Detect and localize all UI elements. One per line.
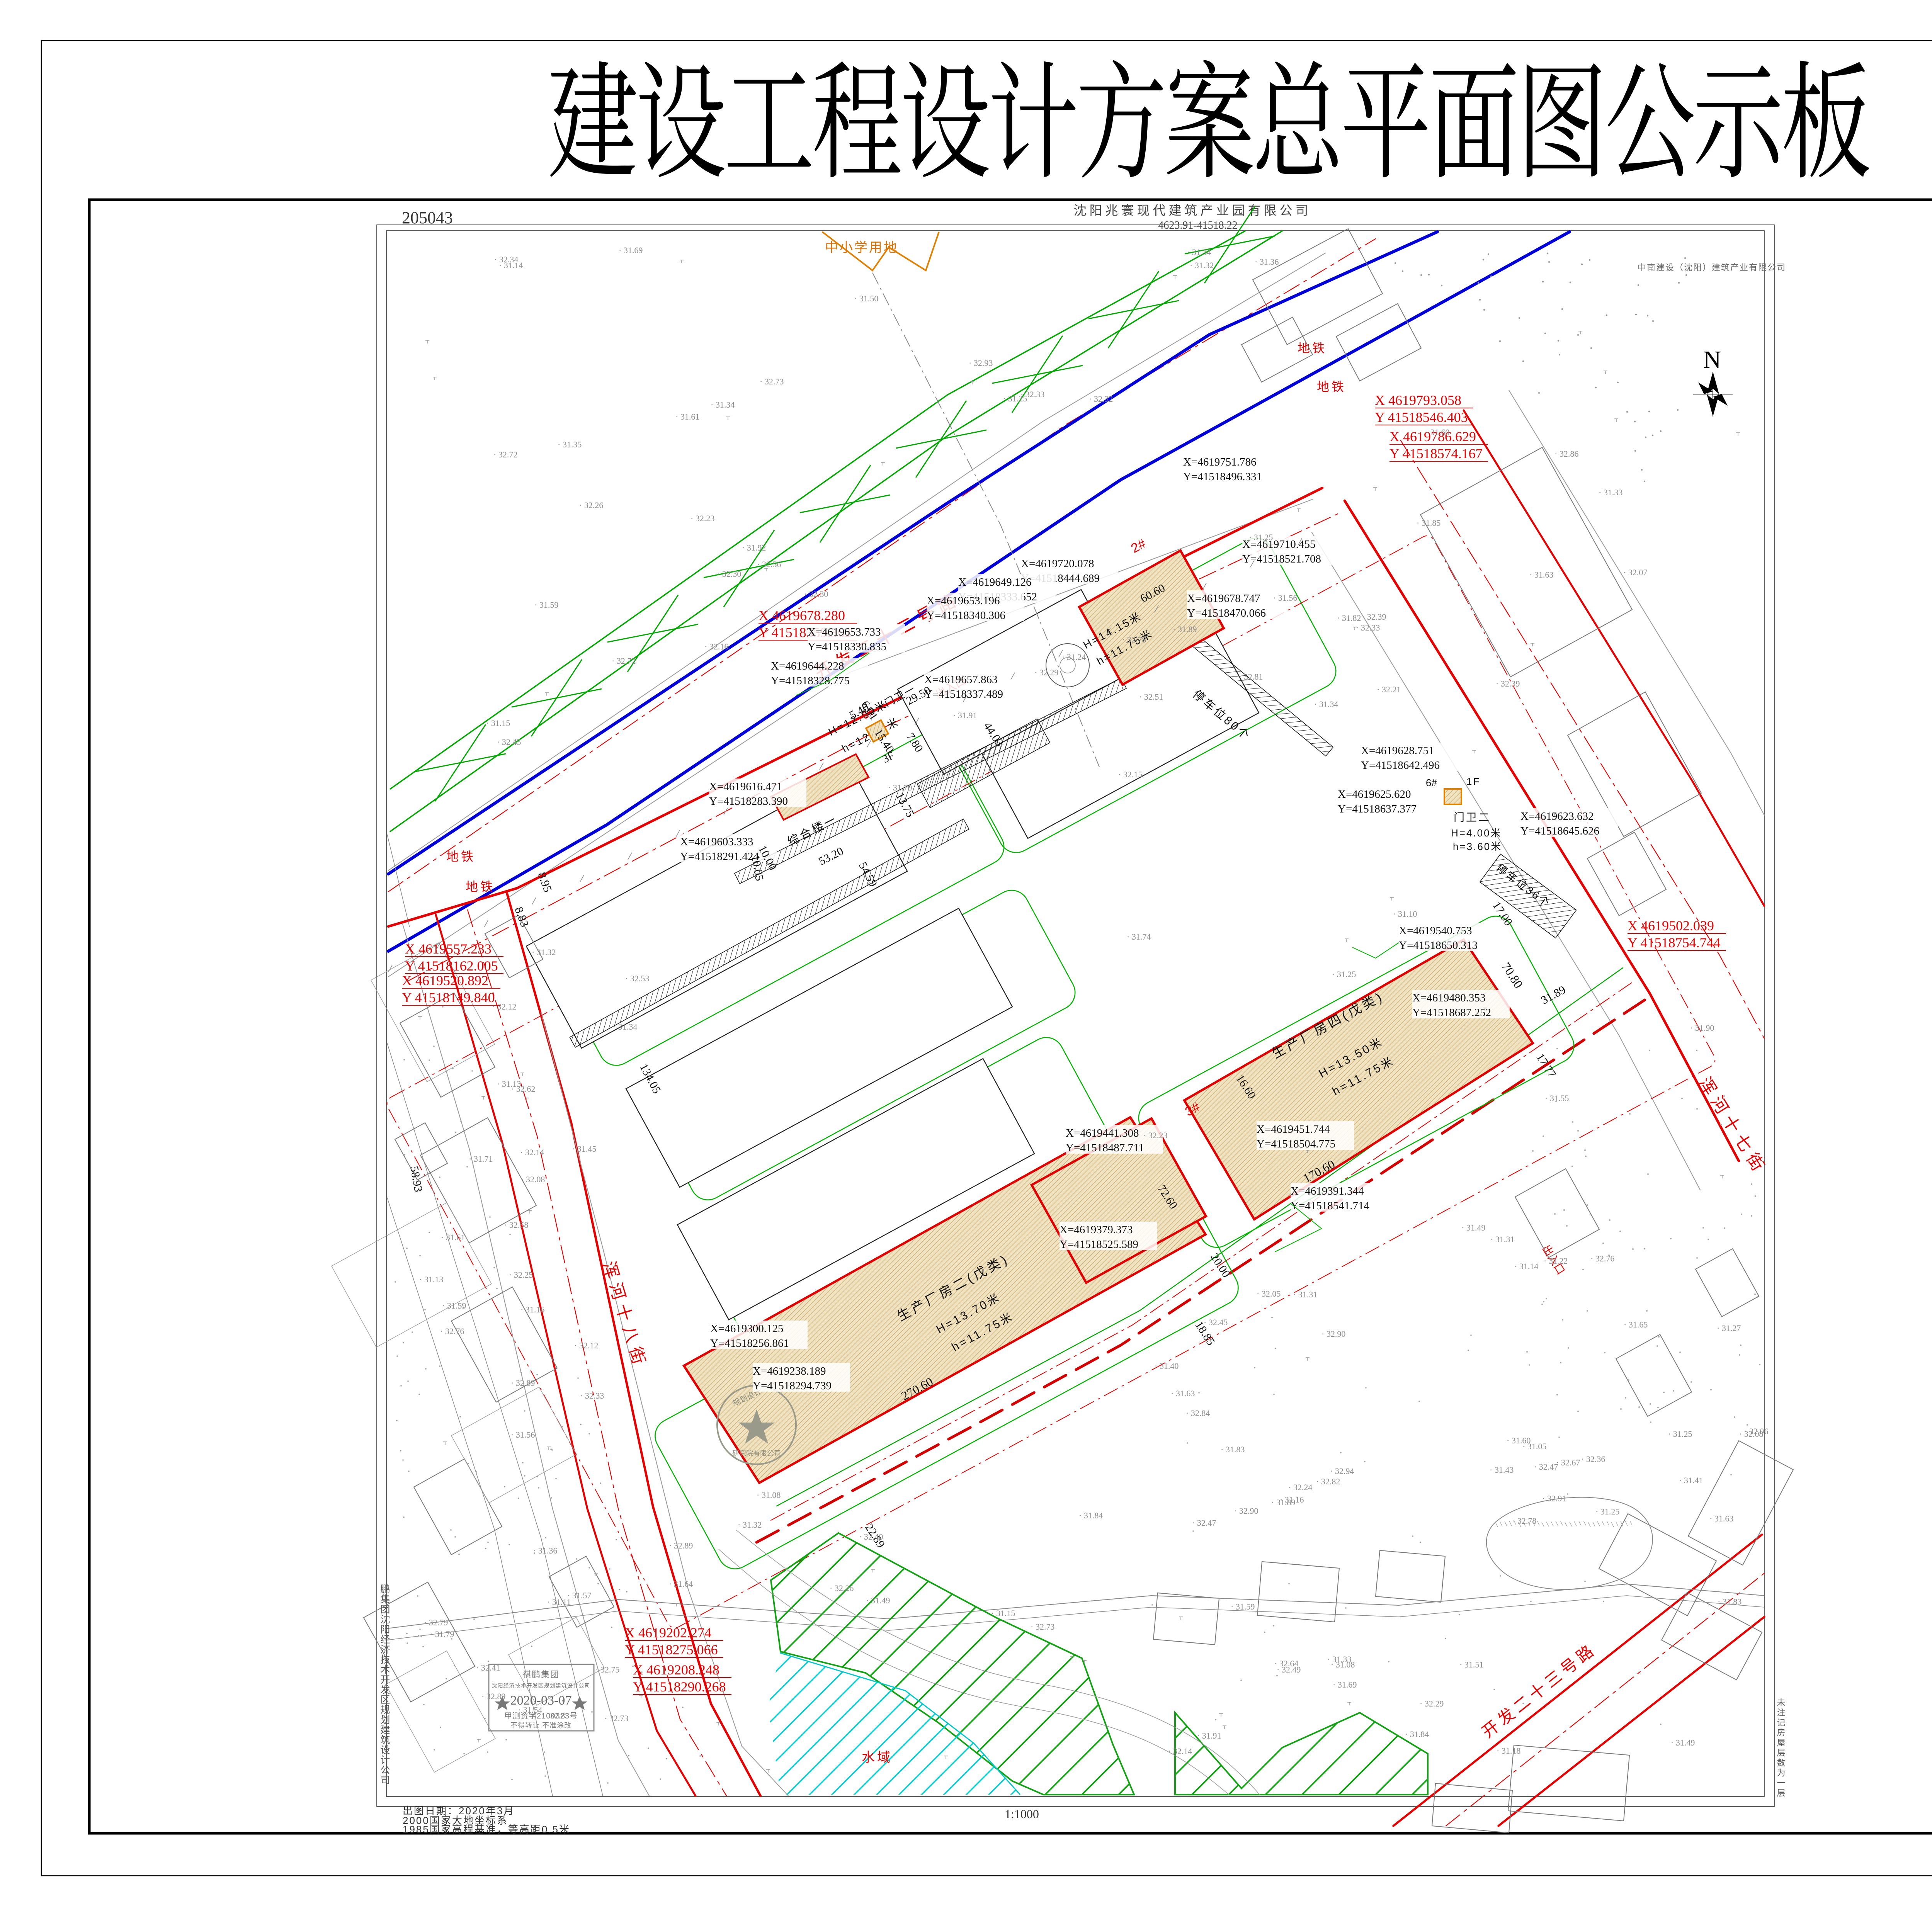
svg-text:· 32.84: · 32.84 xyxy=(1186,1408,1210,1418)
svg-text:· 32.73: · 32.73 xyxy=(760,377,784,386)
svg-text:· 31.25: · 31.25 xyxy=(1332,969,1356,979)
svg-text:· 31.64: · 31.64 xyxy=(669,1579,693,1589)
svg-text:· 31.18: · 31.18 xyxy=(1497,1746,1520,1756)
svg-text:X=4619751.786: X=4619751.786 xyxy=(1183,456,1257,468)
svg-text:· 31.59: · 31.59 xyxy=(1231,1602,1255,1611)
svg-text:· 32.64: · 32.64 xyxy=(1274,1659,1298,1668)
svg-text:· 32.23: · 32.23 xyxy=(690,513,714,523)
svg-text:· 31.70: · 31.70 xyxy=(888,783,912,792)
svg-text:X=4619379.373: X=4619379.373 xyxy=(1060,1224,1133,1236)
svg-text:· 31.83: · 31.83 xyxy=(1221,1445,1245,1454)
svg-text:Y 41518546.403: Y 41518546.403 xyxy=(1375,410,1468,425)
svg-text:Y=41518294.739: Y=41518294.739 xyxy=(753,1380,832,1392)
svg-text:· 31.79: · 31.79 xyxy=(430,1629,454,1639)
svg-text:· 32.39: · 32.39 xyxy=(1362,612,1386,622)
svg-text:1F: 1F xyxy=(1466,776,1480,787)
svg-text:· 32.72: · 32.72 xyxy=(612,656,636,666)
svg-text:X=4619720.078: X=4619720.078 xyxy=(1021,558,1094,570)
svg-text:· 32.41: · 32.41 xyxy=(476,1663,500,1673)
svg-text:· 31.89: · 31.89 xyxy=(1271,1497,1295,1507)
svg-text:X=4619623.632: X=4619623.632 xyxy=(1520,810,1594,823)
svg-text:· 32.07: · 32.07 xyxy=(1623,568,1647,577)
svg-text:X 4619202.274: X 4619202.274 xyxy=(625,1625,711,1640)
svg-text:· 32.56: · 32.56 xyxy=(757,559,781,569)
svg-text:Y=41518687.252: Y=41518687.252 xyxy=(1412,1006,1491,1019)
svg-text:不得转让 不准涂改: 不得转让 不准涂改 xyxy=(510,1722,571,1729)
svg-text:· 32.72: · 32.72 xyxy=(493,450,517,459)
svg-text:· 31.89: · 31.89 xyxy=(1173,624,1197,634)
svg-text:· 31.60: · 31.60 xyxy=(1425,427,1449,437)
svg-text:· 32.14: · 32.14 xyxy=(520,1147,544,1157)
svg-text:· 31.27: · 31.27 xyxy=(1717,1323,1741,1333)
svg-text:· 31.61: · 31.61 xyxy=(675,412,699,422)
svg-text:中小学用地: 中小学用地 xyxy=(825,240,898,255)
svg-text:· 32.90: · 32.90 xyxy=(1321,1329,1345,1339)
svg-text:· 32.82: · 32.82 xyxy=(1316,1477,1340,1486)
svg-text:X=4619391.344: X=4619391.344 xyxy=(1291,1185,1364,1197)
svg-text:Y=41518291.424: Y=41518291.424 xyxy=(680,850,759,863)
svg-text:X=4619644.228: X=4619644.228 xyxy=(771,660,844,672)
svg-text:Y=41518504.775: Y=41518504.775 xyxy=(1257,1138,1335,1150)
svg-text:2#: 2# xyxy=(1129,536,1148,556)
svg-text:· 32.47: · 32.47 xyxy=(1534,1462,1558,1472)
svg-text:· 32.89: · 32.89 xyxy=(481,1691,505,1701)
svg-text:· 31.25: · 31.25 xyxy=(1668,1429,1692,1439)
svg-text:X=4619603.333: X=4619603.333 xyxy=(680,836,753,848)
svg-text:Y 41518162.005: Y 41518162.005 xyxy=(405,958,498,974)
svg-text:未注记房屋层数为一层: 未注记房屋层数为一层 xyxy=(1776,1698,1786,1798)
svg-text:· 31.15: · 31.15 xyxy=(991,1608,1015,1618)
svg-text:· 31.45: · 31.45 xyxy=(572,1144,596,1154)
svg-text:· 31.34: · 31.34 xyxy=(613,1022,637,1032)
svg-text:· 32.33: · 32.33 xyxy=(1020,389,1044,399)
svg-text:祺鹏集团: 祺鹏集团 xyxy=(522,1670,560,1679)
svg-text:· 32.39: · 32.39 xyxy=(1496,679,1520,688)
svg-text:· 32.67: · 32.67 xyxy=(1556,1458,1580,1467)
svg-text:X 4619502.039: X 4619502.039 xyxy=(1628,918,1714,933)
svg-text:· 31.35: · 31.35 xyxy=(558,440,582,449)
svg-text:X=4619441.308: X=4619441.308 xyxy=(1066,1127,1139,1139)
svg-text:· 31.15: · 31.15 xyxy=(486,718,510,728)
svg-text:· 31.55: · 31.55 xyxy=(1545,1093,1569,1103)
svg-text:· 32.90: · 32.90 xyxy=(1234,1506,1258,1516)
svg-text:· 31.84: · 31.84 xyxy=(1079,1511,1103,1520)
svg-text:· 31.34: · 31.34 xyxy=(1314,699,1338,709)
svg-text:· 31.59: · 31.59 xyxy=(534,600,558,610)
svg-text:水域: 水域 xyxy=(862,1750,893,1765)
svg-text:Y 41518290.268: Y 41518290.268 xyxy=(633,1679,726,1695)
svg-text:· 32.47: · 32.47 xyxy=(1192,1518,1216,1528)
svg-text:· 32.12: · 32.12 xyxy=(492,1002,516,1011)
svg-text:X=4619625.620: X=4619625.620 xyxy=(1338,788,1411,801)
svg-text:· 32.78: · 32.78 xyxy=(1122,635,1146,644)
svg-text:X=4619628.751: X=4619628.751 xyxy=(1361,744,1434,757)
svg-text:X 4619557.233: X 4619557.233 xyxy=(405,941,492,957)
svg-text:· 32.21: · 32.21 xyxy=(1377,685,1401,694)
svg-text:· 32.26: · 32.26 xyxy=(830,1583,854,1593)
svg-text:Y=41518525.589: Y=41518525.589 xyxy=(1060,1238,1138,1251)
svg-text:浑河十八街: 浑河十八街 xyxy=(599,1259,650,1372)
svg-text:· 31.63: · 31.63 xyxy=(1529,570,1553,580)
svg-text:· 31.92: · 31.92 xyxy=(742,543,766,552)
svg-text:· 32.24: · 32.24 xyxy=(1288,1482,1312,1492)
svg-text:205043: 205043 xyxy=(402,208,453,227)
svg-text:8.95: 8.95 xyxy=(535,870,554,894)
svg-text:X 4619208.248: X 4619208.248 xyxy=(633,1662,719,1678)
svg-text:· 32.51: · 32.51 xyxy=(1139,692,1163,702)
svg-text:X=4619649.126: X=4619649.126 xyxy=(958,576,1032,588)
svg-text:· 32.33: · 32.33 xyxy=(580,1391,604,1401)
svg-text:Y=41518645.626: Y=41518645.626 xyxy=(1520,825,1599,837)
svg-text:Y=41518330.835: Y=41518330.835 xyxy=(808,641,886,653)
svg-text:· 31.24: · 31.24 xyxy=(1062,652,1086,662)
svg-text:· 31.43: · 31.43 xyxy=(1490,1465,1514,1475)
svg-text:· 32.73: · 32.73 xyxy=(1031,1622,1054,1632)
svg-text:· 32.12: · 32.12 xyxy=(574,1341,598,1350)
svg-text:· 31.54: · 31.54 xyxy=(518,1705,542,1715)
svg-text:· 32.29: · 32.29 xyxy=(1034,668,1058,677)
svg-text:· 32.76: · 32.76 xyxy=(440,1326,464,1336)
svg-text:· 31.40: · 31.40 xyxy=(1155,1361,1179,1371)
svg-text:· 31.32: · 31.32 xyxy=(1190,260,1214,270)
svg-text:· 31.60: · 31.60 xyxy=(1507,1436,1531,1445)
svg-text:· 32.45: · 32.45 xyxy=(1204,1317,1228,1327)
svg-text:· 32.29: · 32.29 xyxy=(1420,1699,1444,1708)
svg-text:X=4619238.189: X=4619238.189 xyxy=(753,1365,826,1377)
svg-text:Y=41518637.377: Y=41518637.377 xyxy=(1338,803,1417,815)
svg-text:· 31.22: · 31.22 xyxy=(1544,1256,1568,1266)
svg-text:· 31.25: · 31.25 xyxy=(1249,532,1273,542)
svg-text:· 32.36: · 32.36 xyxy=(1581,1454,1605,1464)
svg-text:· 31.84: · 31.84 xyxy=(1405,1729,1429,1739)
svg-text:地铁: 地铁 xyxy=(446,850,476,863)
svg-text:· 31.14: · 31.14 xyxy=(499,260,523,270)
svg-text:Y=41518340.306: Y=41518340.306 xyxy=(927,609,1005,622)
svg-text:地铁: 地铁 xyxy=(1317,380,1346,394)
svg-text:· 32.30: · 32.30 xyxy=(804,589,828,599)
svg-text:沈阳经济技术开发区规划建筑设计公司: 沈阳经济技术开发区规划建筑设计公司 xyxy=(492,1683,590,1689)
svg-text:Y=41518470.066: Y=41518470.066 xyxy=(1187,607,1266,619)
svg-text:· 32.16: · 32.16 xyxy=(704,642,728,651)
svg-text:· 32.78: · 32.78 xyxy=(1512,1516,1536,1526)
svg-text:· 31.82: · 31.82 xyxy=(1337,613,1361,623)
svg-text:Y=41518521.708: Y=41518521.708 xyxy=(1242,553,1321,565)
svg-text:· 31.56: · 31.56 xyxy=(511,1430,535,1440)
svg-text:X=4619653.196: X=4619653.196 xyxy=(927,595,1000,607)
svg-text:· 31.69: · 31.69 xyxy=(619,245,643,255)
svg-text:X=4619480.353: X=4619480.353 xyxy=(1412,992,1486,1004)
svg-text:· 31.10: · 31.10 xyxy=(1393,909,1417,919)
svg-text:· 32.25: · 32.25 xyxy=(509,1270,533,1280)
svg-text:开发二十三号路: 开发二十三号路 xyxy=(1478,1640,1600,1741)
svg-text:· 31.31: · 31.31 xyxy=(1293,1290,1317,1299)
svg-text:H=4.00米: H=4.00米 xyxy=(1451,827,1502,839)
svg-text:· 32.75: · 32.75 xyxy=(595,1665,619,1674)
svg-text:X 4619520.892: X 4619520.892 xyxy=(402,973,488,988)
svg-text:· 31.36: · 31.36 xyxy=(533,1546,557,1555)
svg-text:X=4619616.471: X=4619616.471 xyxy=(709,780,782,793)
svg-text:· 32.86: · 32.86 xyxy=(1554,449,1578,459)
svg-text:· 31.49: · 31.49 xyxy=(1671,1738,1695,1747)
svg-text:· 31.69: · 31.69 xyxy=(1333,1680,1357,1690)
svg-text:· 32.81: · 32.81 xyxy=(1239,672,1263,682)
svg-text:· 32.23: · 32.23 xyxy=(1143,1130,1167,1140)
svg-text:· 32.76: · 32.76 xyxy=(1590,1254,1614,1263)
svg-text:· 31.63: · 31.63 xyxy=(1171,1389,1195,1398)
svg-text:Y 41518149.840: Y 41518149.840 xyxy=(402,990,495,1005)
svg-text:Y=41518337.489: Y=41518337.489 xyxy=(924,688,1003,700)
svg-text:· 31.50: · 31.50 xyxy=(854,294,878,303)
svg-text:· 31.08: · 31.08 xyxy=(757,1490,781,1500)
svg-text:X 4619793.058: X 4619793.058 xyxy=(1375,393,1461,408)
svg-text:· 32.73: · 32.73 xyxy=(604,1713,628,1723)
svg-text:Y=41518487.711: Y=41518487.711 xyxy=(1066,1142,1144,1154)
svg-text:· 31.41: · 31.41 xyxy=(1679,1475,1703,1485)
svg-text:· 31.90: · 31.90 xyxy=(1690,1023,1714,1033)
svg-text:· 31.49: · 31.49 xyxy=(866,1596,890,1605)
svg-text:1:1000: 1:1000 xyxy=(1005,1807,1039,1821)
svg-text:· 31.33: · 31.33 xyxy=(1599,488,1622,497)
svg-text:· 31.34: · 31.34 xyxy=(1187,247,1211,257)
svg-text:· 31.61: · 31.61 xyxy=(441,1232,465,1242)
svg-text:Y 41518754.744: Y 41518754.744 xyxy=(1628,935,1721,950)
svg-text:· 31.13: · 31.13 xyxy=(497,1079,521,1089)
svg-text:· 32.91: · 32.91 xyxy=(1542,1494,1566,1503)
svg-text:· 31.34: · 31.34 xyxy=(711,400,735,410)
svg-text:· 32.08: · 32.08 xyxy=(1739,1429,1763,1439)
svg-text:X=4619451.744: X=4619451.744 xyxy=(1257,1123,1330,1135)
svg-text:X=4619653.733: X=4619653.733 xyxy=(808,626,881,638)
svg-text:X=4619540.753: X=4619540.753 xyxy=(1399,925,1472,937)
svg-text:· 31.36: · 31.36 xyxy=(1255,257,1279,267)
svg-text:X 4619678.280: X 4619678.280 xyxy=(759,608,845,623)
svg-text:· 32.58: · 32.58 xyxy=(504,1220,528,1230)
svg-text:· 32.30: · 32.30 xyxy=(717,569,741,579)
svg-text:· 32.93: · 32.93 xyxy=(969,358,993,368)
svg-text:· 32.45: · 32.45 xyxy=(497,737,521,747)
svg-text:· 31.25: · 31.25 xyxy=(1595,1507,1619,1516)
svg-text:· 32.26: · 32.26 xyxy=(579,500,603,510)
svg-text:h=3.60米: h=3.60米 xyxy=(1453,841,1502,852)
svg-text:鹏集团沈阳经济技术开发区规划建筑设计公司: 鹏集团沈阳经济技术开发区规划建筑设计公司 xyxy=(379,1584,390,1785)
svg-text:· 31.74: · 31.74 xyxy=(1127,932,1151,942)
svg-text:· 32.15: · 32.15 xyxy=(1118,770,1142,779)
svg-text:· 31.63: · 31.63 xyxy=(1709,1514,1733,1523)
svg-text:· 31.08: · 31.08 xyxy=(1331,1660,1355,1669)
svg-text:· 32.89: · 32.89 xyxy=(511,1378,535,1388)
svg-text:· 32.14: · 32.14 xyxy=(1168,1746,1192,1756)
svg-text:· 31.32: · 31.32 xyxy=(738,1520,762,1530)
svg-text:Y=41518328.775: Y=41518328.775 xyxy=(771,675,850,687)
svg-text:· 31.65: · 31.65 xyxy=(1624,1320,1648,1329)
svg-text:· 32.05: · 32.05 xyxy=(1257,1289,1281,1299)
svg-text:20.00: 20.00 xyxy=(1208,1251,1233,1280)
svg-text:· 32.94: · 32.94 xyxy=(1330,1466,1354,1476)
svg-text:Y 41518574.167: Y 41518574.167 xyxy=(1389,446,1483,461)
svg-text:X=4619678.747: X=4619678.747 xyxy=(1187,592,1260,605)
svg-text:N: N xyxy=(1703,346,1721,373)
svg-text:· 31.32: · 31.32 xyxy=(532,947,556,957)
svg-text:· 31.14: · 31.14 xyxy=(1514,1261,1538,1271)
svg-text:中南建设（沈阳）建筑产业有限公司: 中南建设（沈阳）建筑产业有限公司 xyxy=(1638,263,1786,272)
svg-text:研究院有限公司: 研究院有限公司 xyxy=(732,1450,781,1457)
svg-text:地铁: 地铁 xyxy=(466,880,495,894)
svg-text:· 32.40: · 32.40 xyxy=(859,1532,883,1542)
svg-text:Y=41518283.390: Y=41518283.390 xyxy=(709,795,788,807)
svg-text:沈阳兆寰现代建筑产业园有限公司: 沈阳兆寰现代建筑产业园有限公司 xyxy=(1074,203,1311,218)
svg-text:· 31.59: · 31.59 xyxy=(442,1301,466,1310)
svg-text:· 31.85: · 31.85 xyxy=(1417,518,1440,528)
svg-text:浑河十七街: 浑河十七街 xyxy=(1695,1074,1770,1179)
svg-text:70.80: 70.80 xyxy=(1499,960,1526,991)
svg-text:X=4619300.125: X=4619300.125 xyxy=(710,1322,784,1335)
svg-text:· 31.83: · 31.83 xyxy=(1718,1597,1742,1606)
svg-text:58.93: 58.93 xyxy=(408,1165,425,1193)
svg-text:· 31.71: · 31.71 xyxy=(469,1154,493,1164)
svg-text:Y 41518275.066: Y 41518275.066 xyxy=(625,1642,718,1657)
svg-text:· 32.89: · 32.89 xyxy=(669,1541,693,1550)
svg-text:· 31.31: · 31.31 xyxy=(1490,1234,1514,1244)
svg-text:Y=41518642.496: Y=41518642.496 xyxy=(1361,759,1440,772)
svg-text:· 31.91: · 31.91 xyxy=(1197,1731,1221,1741)
svg-text:· 31.57: · 31.57 xyxy=(567,1591,591,1600)
svg-text:· 31.49: · 31.49 xyxy=(1461,1223,1485,1232)
svg-text:· 31.13: · 31.13 xyxy=(419,1275,443,1284)
svg-text:Y=41518541.714: Y=41518541.714 xyxy=(1291,1200,1370,1212)
svg-text:X=4619657.863: X=4619657.863 xyxy=(924,673,998,686)
svg-text:· 32.83: · 32.83 xyxy=(545,1711,569,1720)
svg-text:· 32.33: · 32.33 xyxy=(1356,623,1380,632)
svg-text:· 32.79: · 32.79 xyxy=(424,1618,448,1627)
svg-text:· 32.32: · 32.32 xyxy=(1089,394,1113,404)
svg-text:地铁: 地铁 xyxy=(1298,341,1327,355)
svg-text:· 31.56: · 31.56 xyxy=(1273,593,1297,603)
svg-text:· 32.08: · 32.08 xyxy=(521,1175,545,1184)
svg-text:1985国家高程基准，等高距0.5米: 1985国家高程基准，等高距0.5米 xyxy=(403,1824,570,1835)
svg-text:Y=41518496.331: Y=41518496.331 xyxy=(1183,471,1262,483)
svg-text:Y=41518256.861: Y=41518256.861 xyxy=(710,1337,789,1350)
svg-text:· 32.53: · 32.53 xyxy=(625,974,649,983)
svg-text:· 31.51: · 31.51 xyxy=(1459,1660,1483,1669)
svg-text:· 31.16: · 31.16 xyxy=(520,1305,544,1314)
svg-text:门卫二: 门卫二 xyxy=(1454,811,1491,823)
svg-text:Y=41518650.313: Y=41518650.313 xyxy=(1399,939,1478,952)
svg-text:· 31.91: · 31.91 xyxy=(953,710,977,720)
svg-text:4623.91-41518.22: 4623.91-41518.22 xyxy=(1158,219,1237,231)
